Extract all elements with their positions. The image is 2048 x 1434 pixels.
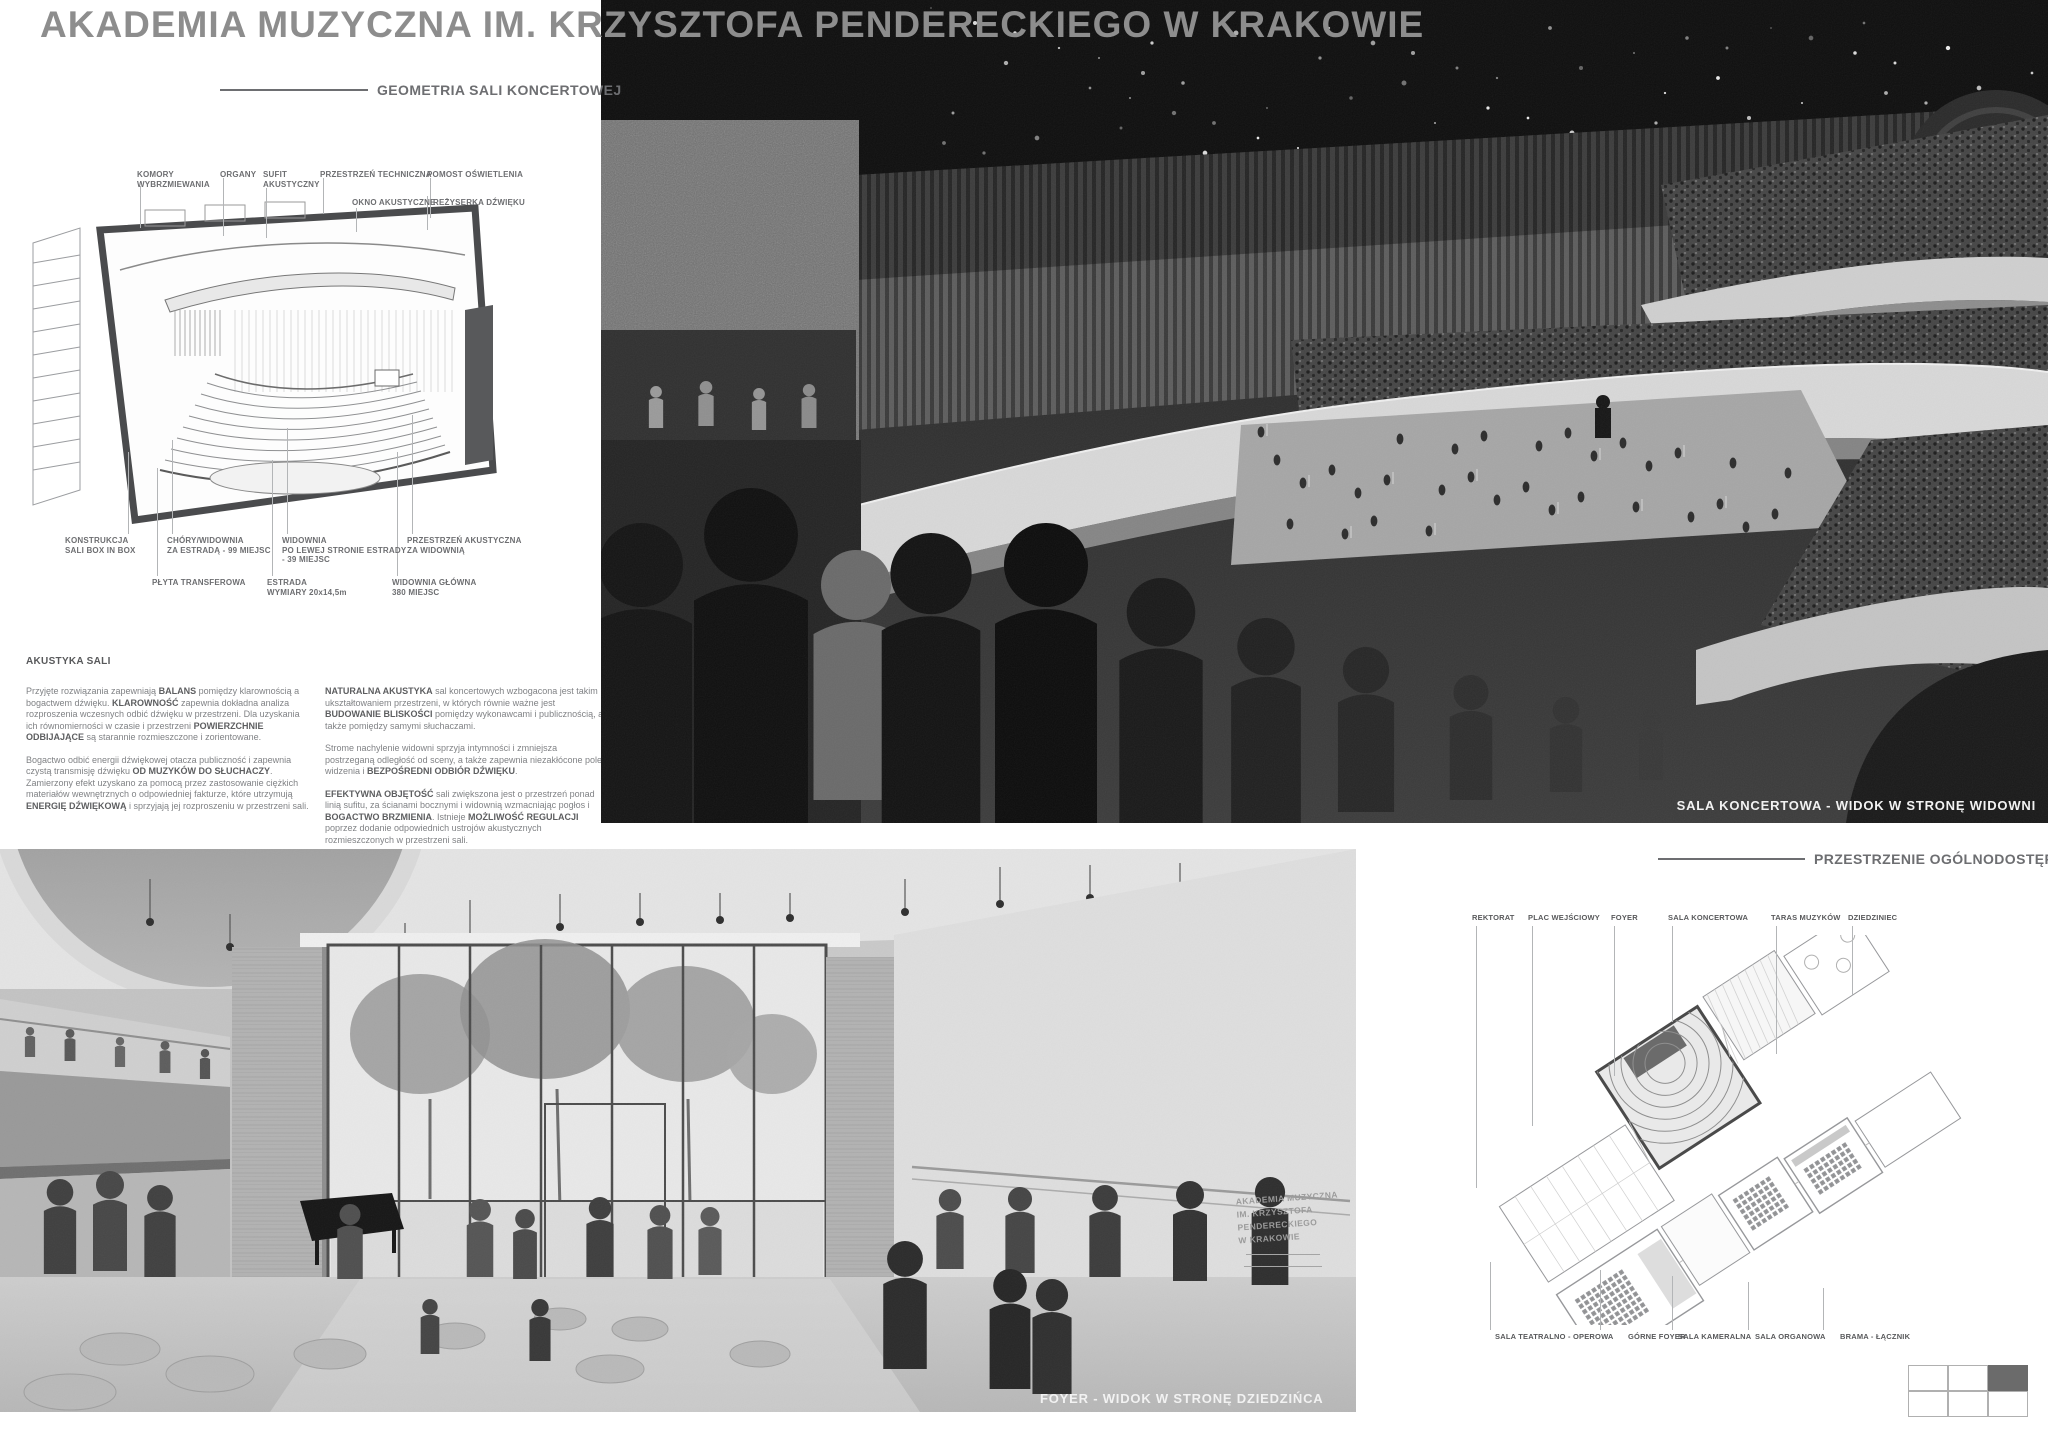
plan-label-kameralna: SALA KAMERALNA bbox=[1678, 1332, 1751, 1341]
callout-widownia-glowna: WIDOWNIA GŁÓWNA 380 MIEJSC bbox=[392, 578, 476, 597]
callout-okno: OKNO AKUSTYCZNE bbox=[352, 198, 436, 208]
plan-label-teatralna: SALA TEATRALNO - OPEROWA bbox=[1495, 1332, 1614, 1341]
callout-konstrukcja: KONSTRUKCJA SALI BOX IN BOX bbox=[65, 536, 136, 555]
plan-label-dziedziniec: DZIEDZINIEC bbox=[1848, 913, 1897, 922]
callout-komory: KOMORY WYBRZMIEWANIA bbox=[137, 170, 210, 189]
acoustics-paragraph: Bogactwo odbić energii dźwiękowej otacza… bbox=[26, 755, 313, 813]
leader-line bbox=[1490, 1262, 1491, 1330]
acoustics-paragraph: Przyjęte rozwiązania zapewniają BALANS p… bbox=[26, 686, 313, 744]
board-index-cell bbox=[1948, 1365, 1988, 1391]
leader-line bbox=[1532, 926, 1533, 1126]
geometry-section-heading: GEOMETRIA SALI KONCERTOWEJ bbox=[220, 82, 622, 98]
leader-line bbox=[266, 188, 267, 238]
leader-line bbox=[1776, 926, 1777, 1054]
callout-chory: CHÓRY/WIDOWNIA ZA ESTRADĄ - 99 MIEJSC bbox=[167, 536, 271, 555]
leader-line bbox=[172, 440, 173, 534]
callout-rezyserka: REŻYSERKA DŹWIĘKU bbox=[433, 198, 525, 208]
foyer-render bbox=[0, 849, 1356, 1412]
leader-line bbox=[1672, 1276, 1673, 1330]
technical-tower bbox=[465, 305, 493, 465]
leader-line bbox=[128, 452, 129, 534]
public-spaces-plan bbox=[1430, 935, 1970, 1325]
acoustics-column-2: NATURALNA AKUSTYKA sal koncertowych wzbo… bbox=[325, 686, 607, 857]
leader-line bbox=[1748, 1282, 1749, 1330]
callout-przestrzen-techniczna: PRZESTRZEŃ TECHNICZNA bbox=[320, 170, 432, 180]
board-index-grid bbox=[1908, 1365, 2028, 1417]
acoustics-paragraph: EFEKTYWNA OBJĘTOŚĆ sali zwiększona jest … bbox=[325, 789, 607, 847]
concert-hall-section-diagram bbox=[25, 160, 575, 575]
plan-label-foyer: FOYER bbox=[1611, 913, 1638, 922]
board-index-cell bbox=[1948, 1391, 1988, 1417]
public-heading-text: PRZESTRZENIE OGÓLNODOSTĘPNE bbox=[1814, 851, 2048, 867]
callout-plyta: PŁYTA TRANSFEROWA bbox=[152, 578, 246, 588]
adjacent-building-section bbox=[33, 228, 80, 505]
acoustics-heading: AKUSTYKA SALI bbox=[26, 656, 111, 667]
plan-label-rektorat: REKTORAT bbox=[1472, 913, 1515, 922]
foyer-illustration bbox=[0, 849, 1356, 1412]
leader-line bbox=[287, 428, 288, 534]
leader-line bbox=[1672, 926, 1673, 1022]
callout-widownia-lewa: WIDOWNIA PO LEWEJ STRONIE ESTRADY - 39 M… bbox=[282, 536, 406, 565]
concert-hall-render bbox=[601, 0, 2048, 823]
leader-line bbox=[272, 460, 273, 576]
leader-line bbox=[412, 415, 413, 534]
foyer-caption: FOYER - WIDOK W STRONĘ DZIEDZIŃCA bbox=[1040, 1391, 1320, 1406]
heading-rule bbox=[1658, 858, 1805, 860]
leader-line bbox=[1823, 1288, 1824, 1330]
plan-label-brama: BRAMA - ŁĄCZNIK bbox=[1840, 1332, 1910, 1341]
acoustic-window bbox=[375, 370, 399, 386]
leader-line bbox=[1614, 926, 1615, 1076]
foyer-wall-sign: AKADEMIA MUZYCZNA IM. KRZYSZTOFA PENDERE… bbox=[1235, 1188, 1341, 1247]
leader-line bbox=[1600, 1270, 1601, 1330]
leader-line bbox=[1476, 926, 1477, 1188]
public-section-heading: PRZESTRZENIE OGÓLNODOSTĘPNE bbox=[1658, 851, 2048, 867]
hall-caption: SALA KONCERTOWA - WIDOK W STRONĘ WIDOWNI bbox=[1676, 798, 2036, 813]
plan-label-sala-koncertowa: SALA KONCERTOWA bbox=[1668, 913, 1748, 922]
board-index-cell bbox=[1908, 1391, 1948, 1417]
wall-sign-rule bbox=[1246, 1254, 1320, 1255]
leader-line bbox=[356, 208, 357, 232]
board-title: AKADEMIA MUZYCZNA IM. KRZYSZTOFA PENDERE… bbox=[40, 4, 1424, 46]
leader-line bbox=[1852, 926, 1853, 996]
board-index-cell-active bbox=[1988, 1365, 2028, 1391]
acoustics-column-1: Przyjęte rozwiązania zapewniają BALANS p… bbox=[26, 686, 313, 823]
presentation-board: AKADEMIA MUZYCZNA IM. KRZYSZTOFA PENDERE… bbox=[0, 0, 2048, 1434]
acoustics-paragraph: NATURALNA AKUSTYKA sal koncertowych wzbo… bbox=[325, 686, 607, 732]
callout-organy: ORGANY bbox=[220, 170, 256, 180]
callout-pomost: POMOST OŚWIETLENIA bbox=[427, 170, 523, 180]
callout-przestrzen-akustyczna: PRZESTRZEŃ AKUSTYCZNA ZA WIDOWNIĄ bbox=[407, 536, 522, 555]
acoustics-paragraph: Strome nachylenie widowni sprzyja intymn… bbox=[325, 743, 607, 778]
geometry-heading-text: GEOMETRIA SALI KONCERTOWEJ bbox=[377, 82, 622, 98]
leader-line bbox=[140, 186, 141, 228]
concert-hall-illustration bbox=[601, 0, 2048, 823]
heading-rule bbox=[220, 89, 368, 91]
plan-label-plac: PLAC WEJŚCIOWY bbox=[1528, 913, 1600, 922]
plan-label-organowa: SALA ORGANOWA bbox=[1755, 1332, 1826, 1341]
leader-line bbox=[323, 178, 324, 214]
leader-line bbox=[157, 468, 158, 576]
plan-label-gorne-foyer: GÓRNE FOYER bbox=[1628, 1332, 1686, 1341]
callout-estrada: ESTRADA WYMIARY 20x14,5m bbox=[267, 578, 347, 597]
stage-platform bbox=[210, 462, 380, 494]
board-index-cell bbox=[1908, 1365, 1948, 1391]
callout-sufit: SUFIT AKUSTYCZNY bbox=[263, 170, 320, 189]
plan-label-taras: TARAS MUZYKÓW bbox=[1771, 913, 1841, 922]
board-index-cell bbox=[1988, 1391, 2028, 1417]
leader-line bbox=[223, 178, 224, 236]
brama-block bbox=[1855, 1072, 1960, 1167]
wall-sign-rule bbox=[1244, 1266, 1322, 1267]
